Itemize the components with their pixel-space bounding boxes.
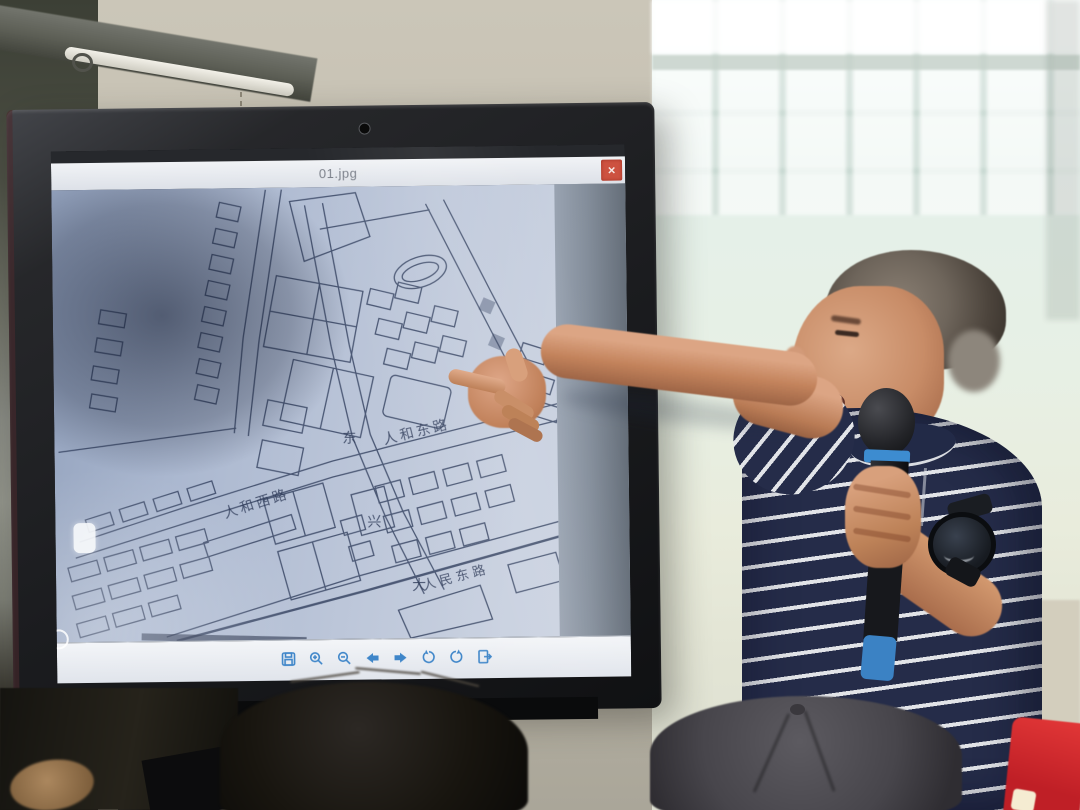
close-icon: × xyxy=(608,163,616,178)
window-right-shade xyxy=(1046,0,1080,320)
microphone-blue-tail xyxy=(860,635,897,682)
image-viewer-title: 01.jpg xyxy=(319,166,358,181)
rotate-right-icon[interactable] xyxy=(447,647,466,666)
microphone-lower-body xyxy=(863,559,902,641)
close-button[interactable]: × xyxy=(601,159,622,180)
zoom-out-icon[interactable] xyxy=(335,649,354,668)
panel-camera-dot xyxy=(359,123,371,135)
smartboard-screen[interactable]: 01.jpg × xyxy=(51,144,631,683)
previous-image-icon[interactable] xyxy=(363,648,382,667)
cap-crown-button xyxy=(790,704,805,715)
window-top-band xyxy=(652,0,1080,54)
rotate-left-icon[interactable] xyxy=(419,648,438,667)
cap-seam-2 xyxy=(803,710,835,792)
smartboard-panel: 01.jpg × xyxy=(6,102,661,716)
audience-head-cap xyxy=(650,696,962,810)
viewer-bottom-strip xyxy=(57,635,631,683)
red-garment-trim xyxy=(1010,788,1036,810)
microphone-windscreen xyxy=(858,388,915,456)
next-image-icon[interactable] xyxy=(391,648,410,667)
floating-sidebar-button[interactable] xyxy=(73,523,95,553)
finger-crease-1 xyxy=(853,484,911,499)
finger-crease-2 xyxy=(853,506,911,521)
exit-icon[interactable] xyxy=(475,647,494,666)
finger-crease-3 xyxy=(853,528,911,543)
zoom-in-icon[interactable] xyxy=(307,649,326,668)
window-beam xyxy=(652,55,1080,70)
presenter-fist xyxy=(845,466,921,568)
cap-seam-1 xyxy=(753,713,791,793)
presenter-gray-temple xyxy=(948,330,1000,392)
photo-glare xyxy=(54,437,336,642)
map-photo[interactable]: 人和西路 人和东路 人民东路 东 兴 大 xyxy=(51,183,630,642)
save-icon[interactable] xyxy=(279,649,298,668)
classroom-scene: 01.jpg × xyxy=(0,0,1080,810)
viewer-toolbar xyxy=(279,647,494,669)
